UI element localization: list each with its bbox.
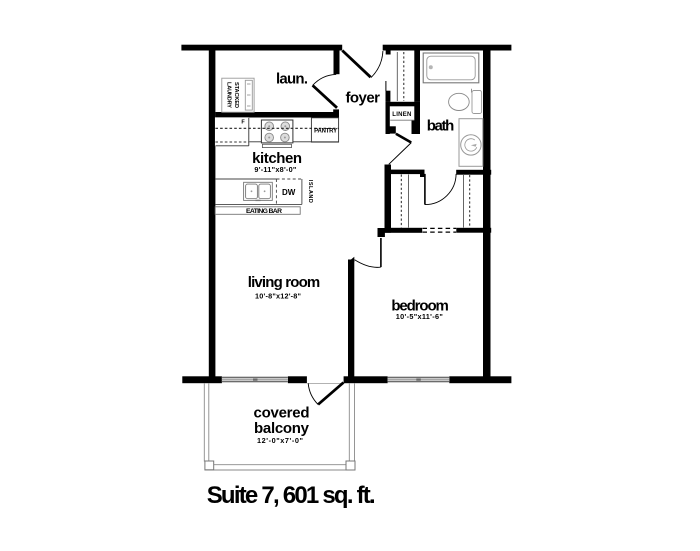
svg-text:12'-0"x7'-0": 12'-0"x7'-0" (257, 436, 303, 445)
svg-text:balcony: balcony (254, 420, 310, 437)
svg-text:bath: bath (427, 117, 455, 134)
svg-text:foyer: foyer (345, 89, 380, 106)
svg-text:ISLAND: ISLAND (307, 180, 313, 203)
svg-text:DW: DW (282, 188, 296, 197)
svg-text:LINEN: LINEN (392, 112, 411, 118)
svg-text:living room: living room (248, 274, 321, 291)
svg-text:10'-5"x11'-6": 10'-5"x11'-6" (396, 312, 443, 321)
svg-text:9'-11"x8'-0": 9'-11"x8'-0" (254, 165, 296, 174)
svg-text:LAUNDRY: LAUNDRY (226, 82, 232, 108)
svg-text:Suite 7, 601 sq. ft.: Suite 7, 601 sq. ft. (207, 482, 376, 509)
svg-text:laun.: laun. (276, 71, 308, 88)
svg-text:EATING BAR: EATING BAR (246, 208, 282, 215)
svg-text:10'-8"x12'-8": 10'-8"x12'-8" (255, 291, 301, 300)
svg-text:STACKED: STACKED (233, 82, 239, 108)
svg-text:PANTRY: PANTRY (314, 128, 337, 134)
